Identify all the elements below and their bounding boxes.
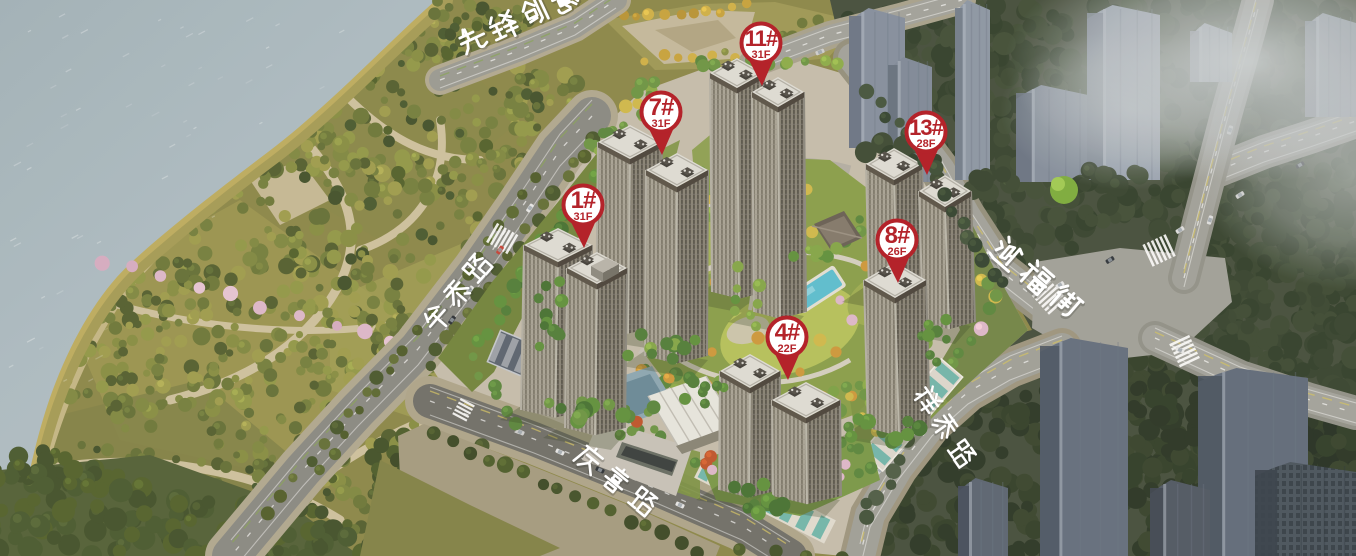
svg-text:31F: 31F bbox=[652, 118, 671, 130]
svg-text:26F: 26F bbox=[888, 246, 907, 258]
svg-text:8#: 8# bbox=[885, 222, 910, 249]
svg-text:22F: 22F bbox=[778, 343, 797, 355]
svg-text:11#: 11# bbox=[745, 26, 778, 51]
svg-text:31F: 31F bbox=[574, 211, 593, 223]
svg-text:13#: 13# bbox=[909, 115, 943, 140]
svg-text:31F: 31F bbox=[752, 49, 771, 61]
svg-text:7#: 7# bbox=[649, 94, 674, 121]
svg-text:4#: 4# bbox=[775, 319, 800, 346]
svg-text:28F: 28F bbox=[917, 138, 936, 150]
svg-text:1#: 1# bbox=[571, 187, 596, 214]
